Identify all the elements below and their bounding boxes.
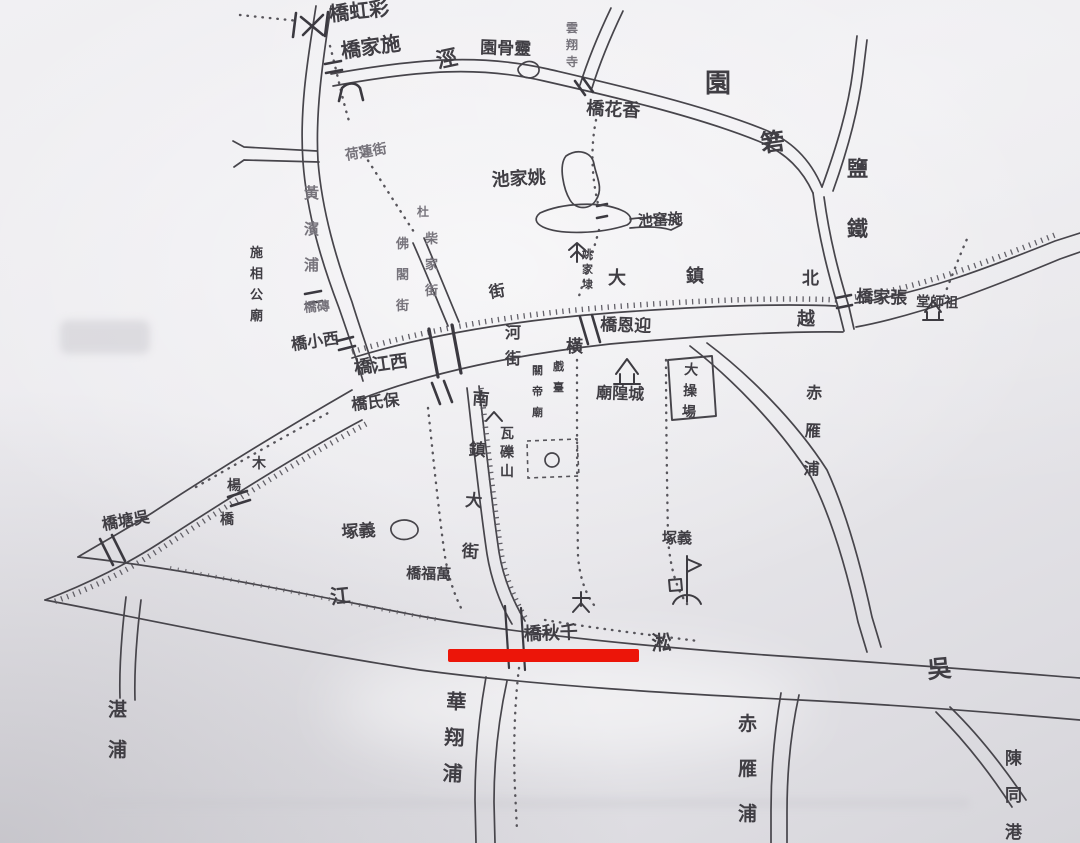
label-road-char-da: 大 — [608, 267, 626, 289]
yantie-canal-stem — [813, 193, 854, 331]
label-caihong-bridge: 橋虹彩 — [328, 0, 390, 26]
label-jing-stream: 涇 — [434, 45, 460, 73]
dots-ns-line-west — [577, 360, 597, 609]
label-wanfu-bridge: 橋福萬 — [406, 564, 452, 584]
label-yizhong-left: 塚義 — [341, 520, 376, 543]
label-zhan-pu: 湛浦 — [108, 698, 127, 761]
label-xijiang-bridge: 橋江西 — [353, 350, 410, 379]
dots-south-of-qianqiu — [514, 668, 519, 830]
label-xianghua-bridge: 橋花香 — [586, 97, 642, 122]
label-he-jie: 河街 — [504, 323, 521, 368]
label-walishan: 瓦礫山 — [500, 426, 515, 480]
map-photo: 橋虹彩橋家施涇園骨靈雲翔寺橋花香園箬鹽鐵橋家張堂師祖北鎮大街越橋恩迎姚家埭池家姚… — [0, 0, 1080, 843]
label-jiang: 江 — [329, 583, 351, 609]
label-mu-char: 木 — [251, 455, 267, 472]
labels-layer: 橋虹彩橋家施涇園骨靈雲翔寺橋花香園箬鹽鐵橋家張堂師祖北鎮大街越橋恩迎姚家埭池家姚… — [100, 0, 1023, 843]
label-road-char-zhen: 鎮 — [686, 265, 704, 287]
chiyanpu-south-channel — [771, 693, 799, 843]
yingen-bridge-icon — [580, 315, 600, 344]
label-huaxiang-pu: 華翔浦 — [441, 689, 467, 786]
chaijia-street-lines — [413, 238, 459, 326]
label-chenghuang-miao: 廟隍城 — [596, 383, 645, 404]
north-river-bank-a — [331, 60, 822, 187]
label-road-char-jie: 街 — [486, 280, 506, 302]
label-chentong-gang: 陳同港 — [1005, 748, 1023, 843]
label-yizhong-right: 塚義 — [662, 529, 692, 547]
dots-zushi-ne — [944, 239, 967, 296]
north-branch-up — [580, 8, 623, 88]
label-wu: 吳 — [926, 654, 953, 684]
dots-chaijia-upper — [360, 148, 414, 232]
grave-flag-icon — [669, 556, 701, 604]
hand-drawn-map: 橋虹彩橋家施涇園骨靈雲翔寺橋花香園箬鹽鐵橋家張堂師祖北鎮大街越橋恩迎姚家埭池家姚… — [0, 0, 1080, 843]
market-river-bank-n — [352, 305, 836, 358]
label-song: 淞 — [651, 630, 672, 655]
label-chaijia-street: 柴家街 — [424, 231, 439, 299]
label-shixianggong-miao: 施相公廟 — [250, 245, 263, 324]
zhanpu-channel — [120, 597, 141, 700]
label-shijia-bridge: 橋家施 — [339, 31, 402, 63]
label-heng: 橫 — [566, 336, 584, 357]
chenghuang-temple-icon — [614, 359, 640, 384]
label-zhangjia-bridge: 橋家張 — [856, 286, 909, 309]
label-huangbin-pu: 黃濱浦 — [304, 184, 319, 274]
label-wutang-bridge: 橋塘吳 — [100, 507, 152, 534]
label-shiyao-pond: 池窰施 — [637, 210, 683, 230]
label-qianqiu-bridge: 橋秋千 — [523, 621, 578, 645]
label-chiyan-pu-south: 赤雁浦 — [738, 713, 757, 825]
hatch-south-street — [481, 388, 527, 621]
label-du: 杜 — [417, 204, 429, 219]
linggu-pond-shape — [518, 62, 539, 78]
label-road-char-bei: 北 — [802, 269, 819, 289]
courtyard-circle — [545, 453, 559, 467]
diagonal-river-bank-s — [45, 420, 362, 600]
diagonal-river-bank-n — [78, 390, 352, 557]
shijia-bridge-icon — [325, 61, 342, 73]
label-guandi-miao: 關帝廟 — [532, 364, 543, 419]
yizhong-pond-shape — [391, 520, 418, 539]
label-helian-street: 荷蓮街 — [343, 140, 388, 164]
label-yuan-garden: 園 — [705, 69, 731, 99]
baoshi-bridge-icon — [432, 381, 452, 404]
dots-topleft — [240, 15, 299, 21]
label-yaojiadai: 姚家埭 — [581, 247, 594, 291]
label-dacaochang: 大操場 — [682, 361, 700, 421]
north-river-bank-b — [333, 72, 813, 193]
west-stub-channel — [233, 141, 319, 167]
market-river-east-ext — [855, 233, 1080, 327]
label-yang-char: 楊 — [227, 477, 241, 494]
label-zhuan-bridge: 橋磚 — [303, 298, 330, 316]
label-chiyan-pu-mid: 赤雁浦 — [803, 383, 822, 479]
label-yantie-canal: 鹽鐵 — [847, 157, 868, 241]
label-yunxiang-temple: 雲翔寺 — [565, 21, 578, 69]
label-ruo: 箬 — [759, 127, 787, 158]
field-figure-icon — [573, 592, 589, 612]
label-xitai: 戲臺 — [553, 359, 565, 394]
label-foge-street: 佛閣街 — [395, 236, 409, 314]
label-qiao-char: 橋 — [220, 511, 235, 528]
shiyao-pond-shape — [536, 204, 631, 232]
caihong-bridge-icon — [293, 12, 328, 37]
red-underline-annotation — [448, 649, 639, 662]
dashed-courtyard-box — [527, 439, 579, 478]
label-zushi-hall: 堂師祖 — [916, 293, 959, 311]
label-linggu-yuan: 園骨靈 — [480, 38, 532, 60]
hill-caret-icon — [486, 412, 502, 421]
label-baoshi-bridge: 橋氏保 — [350, 390, 401, 414]
label-yue: 越 — [796, 308, 816, 330]
label-yingen-bridge: 橋恩迎 — [600, 314, 652, 337]
se-branch-chiyan — [690, 343, 881, 652]
label-xixiao-bridge: 橋小西 — [290, 328, 340, 353]
huaxiangpu-channel — [475, 677, 507, 843]
label-yaojia-pond: 池家姚 — [491, 166, 546, 191]
